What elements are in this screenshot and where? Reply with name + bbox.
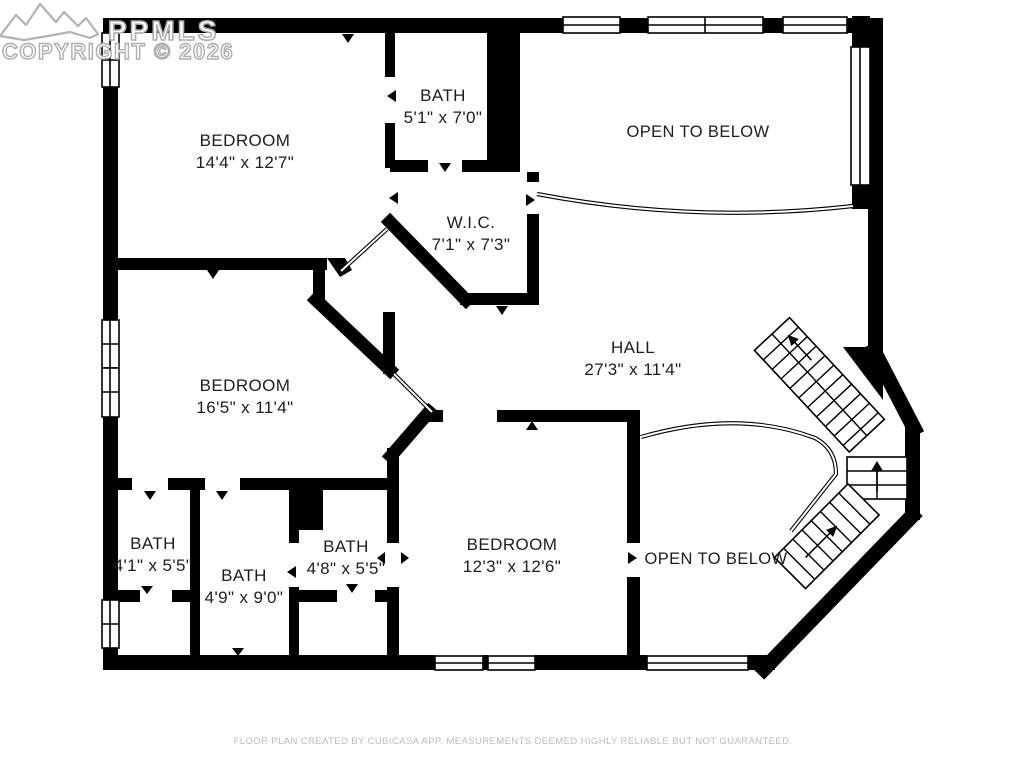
wall-segment (103, 655, 435, 670)
door-arrow-icon (141, 586, 153, 594)
room-label-bath-3: BATH (323, 537, 369, 556)
wall-segment (852, 16, 870, 47)
window (102, 600, 119, 648)
room-dims-bath-1: 4'1" x 5'5" (114, 556, 193, 575)
room-labels: BEDROOM 14'4" x 12'7" BATH 5'1" x 7'0" W… (114, 86, 788, 607)
room-label-bath-upper: BATH (420, 86, 466, 105)
room-dims-bath-2: 4'9" x 9'0" (205, 588, 284, 607)
door-arrow-icon (401, 552, 409, 564)
room-dims-hall: 27'3" x 11'4" (584, 360, 681, 379)
wall-segment (390, 160, 428, 172)
footer-disclaimer: FLOOR PLAN CREATED BY CUBICASA APP. MEAS… (234, 736, 793, 747)
room-label-hall: HALL (611, 338, 655, 357)
wall-segment (103, 478, 132, 490)
window (102, 368, 119, 417)
floor-plan-page: BEDROOM 14'4" x 12'7" BATH 5'1" x 7'0" W… (0, 0, 1024, 767)
room-dims-bedroom-3: 12'3" x 12'6" (463, 557, 561, 576)
window (102, 320, 119, 368)
room-label-bedroom-1: BEDROOM (200, 131, 291, 150)
room-label-wic: W.I.C. (447, 213, 496, 232)
wall-segment (627, 422, 640, 543)
mountain-logo-icon (0, 4, 98, 40)
door-arrow-icon (342, 34, 354, 43)
door-arrow-icon (232, 648, 244, 656)
railing-bottom (641, 423, 836, 531)
wall-segment (289, 587, 299, 658)
stairs-upper-flight (754, 318, 884, 452)
door-arrow-icon (144, 491, 156, 500)
room-dims-wic: 7'1" x 7'3" (432, 235, 511, 254)
room-label-open-to-below-lower: OPEN TO BELOW (644, 550, 787, 568)
door-arrow-icon (526, 194, 535, 206)
door-arrow-icon (346, 584, 358, 593)
room-dims-bath-upper: 5'1" x 7'0" (404, 108, 483, 127)
wall-segment (387, 448, 399, 543)
door-arrow-icon (387, 90, 396, 102)
window (563, 17, 620, 33)
wall-segment (172, 590, 200, 602)
watermark: PPMLS COPYRIGHT © 2026 (0, 4, 234, 64)
room-label-bath-1: BATH (130, 534, 176, 553)
wall-segment (103, 258, 327, 270)
wall-segment (763, 18, 783, 33)
wall-hinge-nub (327, 258, 352, 277)
watermark-copyright: COPYRIGHT © 2026 (2, 39, 234, 64)
room-dims-bedroom-2: 16'5" x 11'4" (196, 398, 293, 417)
wall-segment (620, 18, 648, 33)
wall-segment (462, 160, 487, 172)
door-arrow-icon (216, 491, 228, 500)
wall-segment (190, 602, 200, 658)
wall-chase (487, 30, 520, 172)
wall-segment (299, 590, 337, 602)
wall-segment (385, 33, 395, 77)
door-arrow-icon (287, 566, 296, 578)
wall-bed2-diagonal (316, 300, 390, 370)
room-label-bath-2: BATH (221, 566, 267, 585)
door-arrow-icon (389, 192, 398, 204)
wall-segment (497, 410, 640, 422)
room-dims-bedroom-1: 14'4" x 12'7" (196, 153, 294, 172)
window (488, 656, 535, 670)
wall-segment (383, 312, 395, 374)
wall-segment (527, 214, 539, 305)
railing-top (537, 194, 853, 213)
wall-segment (375, 590, 387, 602)
wall-chase (297, 487, 323, 530)
room-label-bedroom-2: BEDROOM (200, 376, 291, 395)
wall-segment (118, 590, 140, 602)
door-arrow-icon (526, 421, 538, 430)
wall-segment (627, 577, 640, 658)
wall-wic-diagonal (390, 222, 466, 300)
window (648, 17, 763, 33)
door-arrow-icon (207, 270, 219, 279)
wall-segment (852, 185, 870, 209)
wall-segment (103, 87, 118, 320)
door-arrow-icon (496, 306, 508, 315)
wall-segment (527, 172, 539, 182)
window (851, 47, 870, 185)
room-label-bedroom-3: BEDROOM (467, 535, 558, 554)
door-arrow-icon (439, 163, 451, 172)
floor-plan: BEDROOM 14'4" x 12'7" BATH 5'1" x 7'0" W… (0, 0, 1024, 767)
room-label-open-to-below-upper: OPEN TO BELOW (626, 123, 769, 141)
window (783, 17, 847, 33)
room-dims-bath-3: 4'8" x 5'5" (307, 559, 386, 578)
wall-segment (387, 587, 399, 658)
window (435, 656, 483, 670)
window (647, 656, 748, 670)
door-arrow-icon (628, 552, 637, 564)
